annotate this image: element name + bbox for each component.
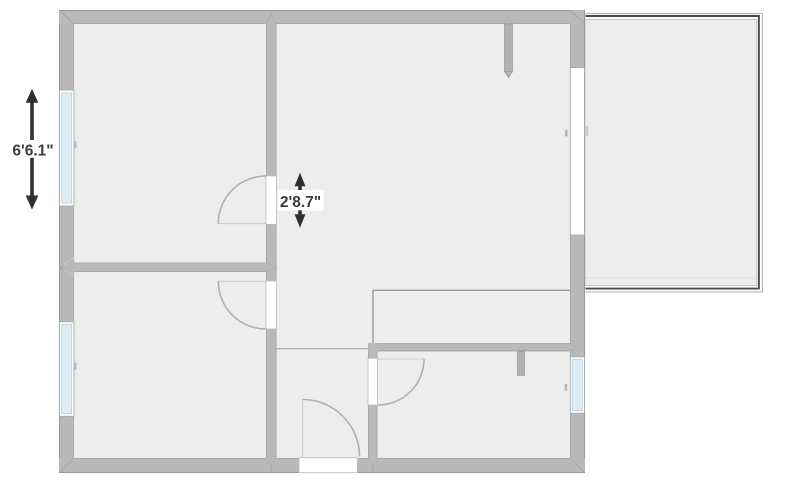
svg-text:2'8.7": 2'8.7" — [280, 194, 321, 211]
svg-text:6'6.1": 6'6.1" — [12, 142, 53, 159]
